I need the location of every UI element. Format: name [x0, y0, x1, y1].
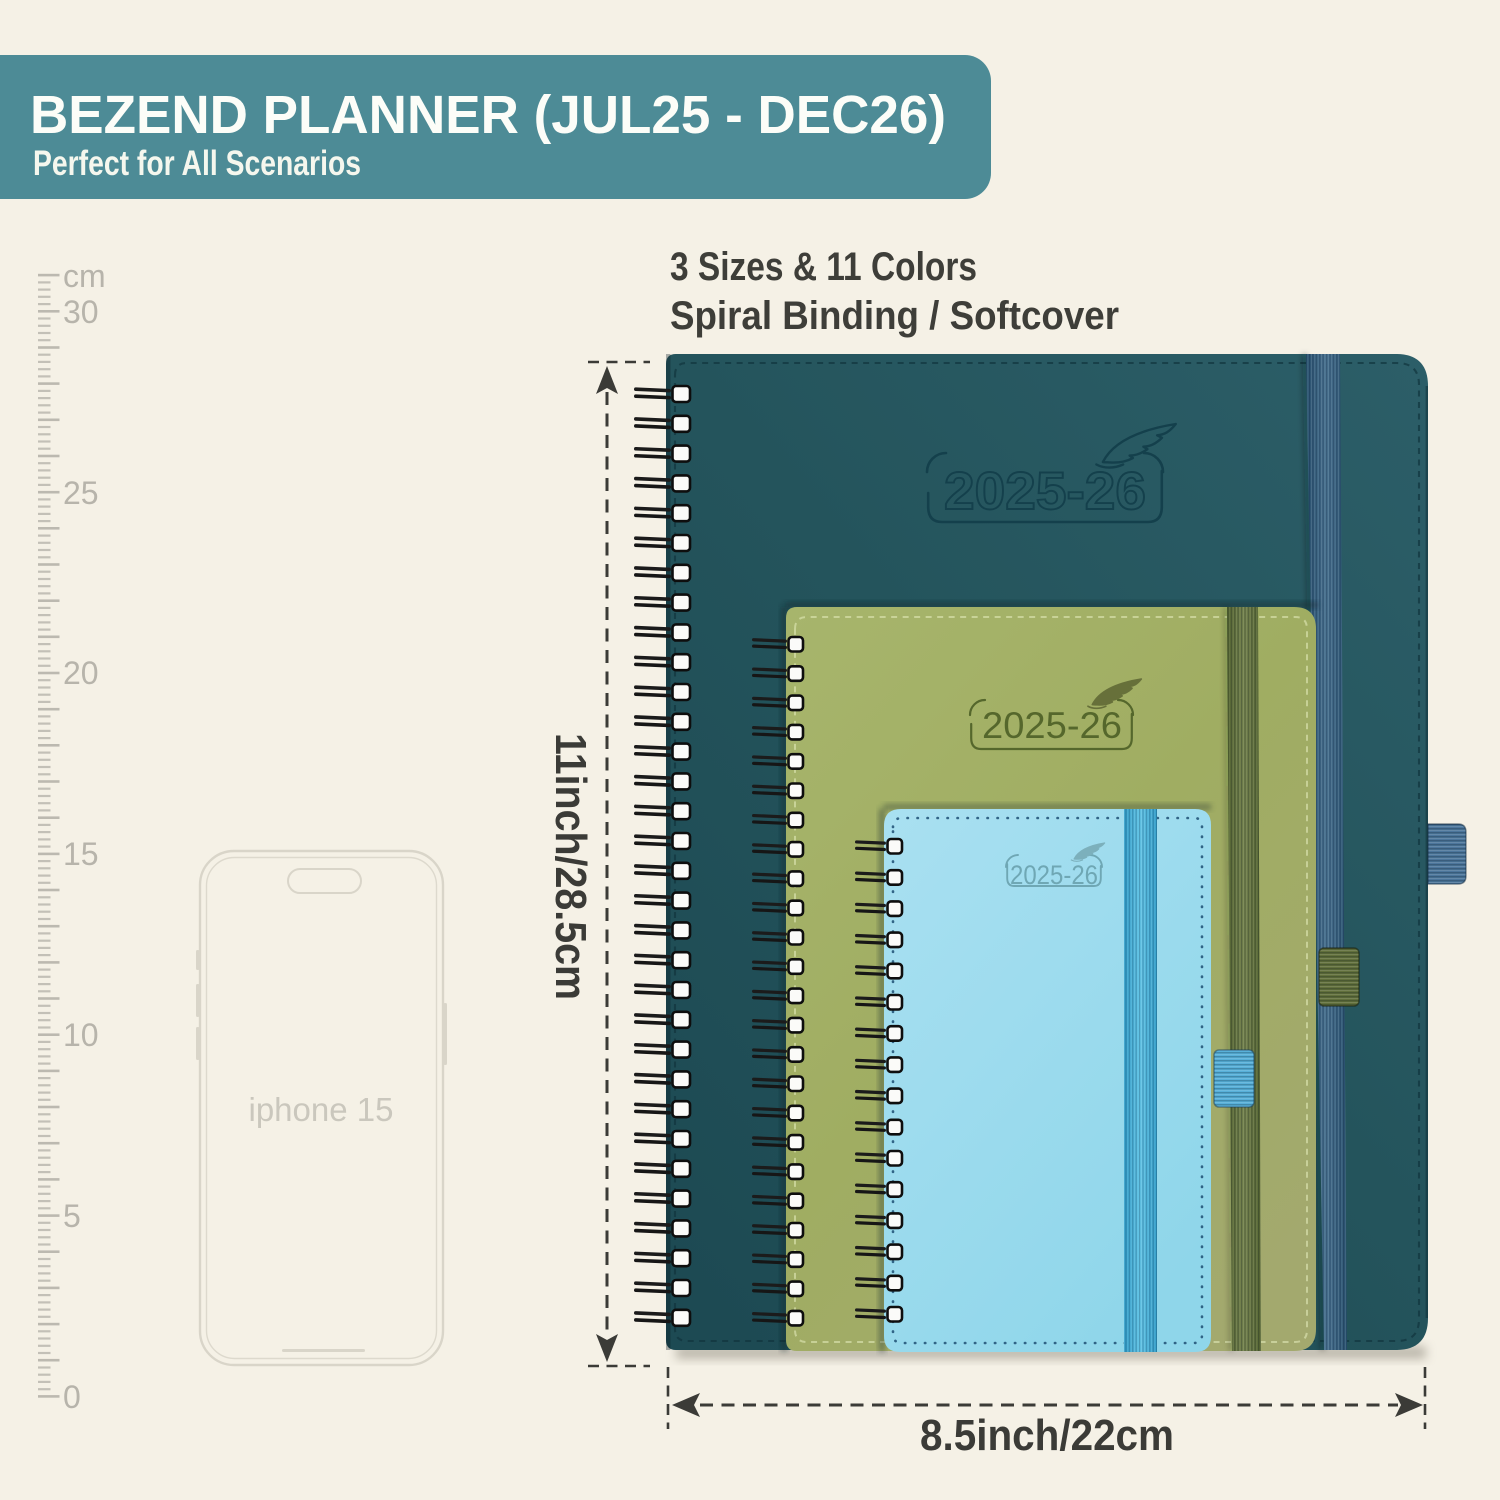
- svg-text:20: 20: [63, 655, 99, 691]
- svg-text:3 Sizes & 11 Colors: 3 Sizes & 11 Colors: [670, 245, 977, 289]
- svg-text:iphone 15: iphone 15: [249, 1091, 394, 1128]
- svg-text:25: 25: [63, 475, 99, 511]
- svg-text:0: 0: [63, 1379, 81, 1415]
- svg-text:15: 15: [63, 836, 99, 872]
- svg-text:2025-26: 2025-26: [1010, 860, 1098, 890]
- svg-text:10: 10: [63, 1017, 99, 1053]
- svg-text:30: 30: [63, 294, 99, 330]
- svg-text:2025-26: 2025-26: [944, 462, 1146, 521]
- svg-text:8.5inch/22cm: 8.5inch/22cm: [920, 1411, 1174, 1460]
- svg-text:Perfect for All Scenarios: Perfect for All Scenarios: [33, 144, 361, 183]
- svg-text:Spiral Binding / Softcover: Spiral Binding / Softcover: [670, 294, 1119, 338]
- svg-text:BEZEND PLANNER (JUL25 - DEC26): BEZEND PLANNER (JUL25 - DEC26): [30, 85, 946, 145]
- svg-text:11inch/28.5cm: 11inch/28.5cm: [546, 733, 595, 1000]
- svg-text:cm: cm: [63, 258, 106, 294]
- svg-text:2025-26: 2025-26: [982, 705, 1122, 746]
- svg-text:5: 5: [63, 1198, 81, 1234]
